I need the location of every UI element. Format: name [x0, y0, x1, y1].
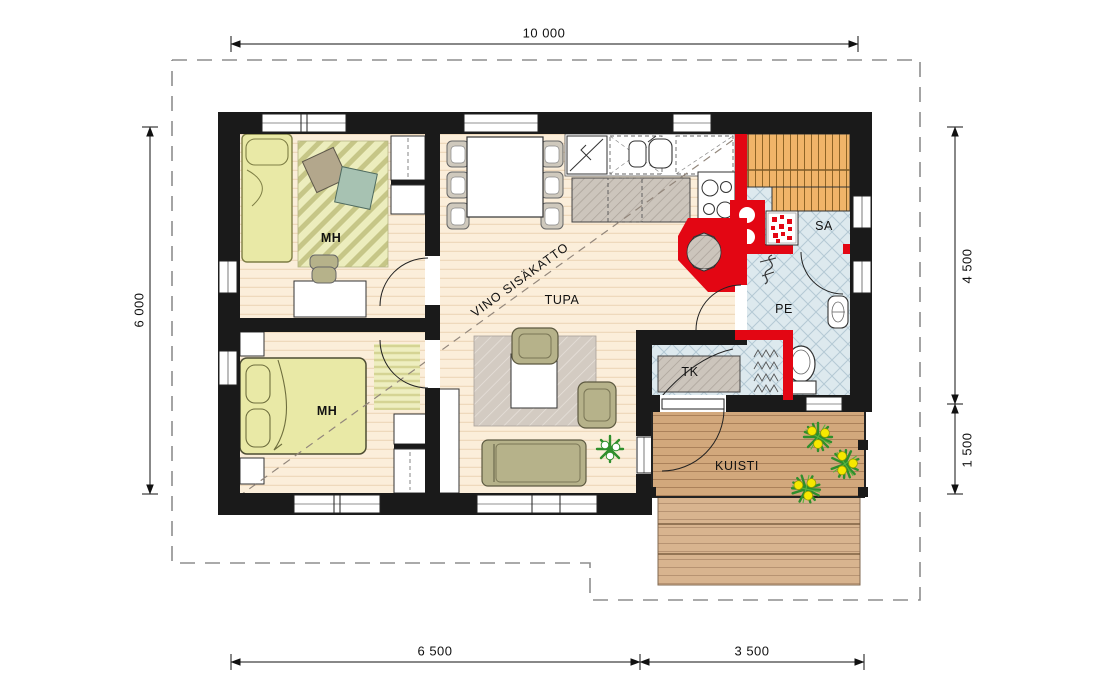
dimension-bottom-left: 6 500	[417, 644, 452, 659]
wardrobe	[394, 414, 426, 444]
kitchen	[565, 134, 735, 222]
window	[853, 261, 871, 293]
window	[673, 114, 711, 132]
dining-table	[467, 137, 543, 217]
porch-deck	[652, 412, 866, 497]
porch-post	[646, 487, 656, 497]
room-label-utility: TK	[681, 365, 698, 379]
door-opening	[425, 340, 440, 388]
window	[219, 261, 237, 293]
sofa	[482, 440, 586, 486]
pillow	[246, 139, 288, 165]
door-opening	[425, 256, 440, 305]
window	[219, 351, 237, 385]
floor-plan-drawing	[0, 0, 1100, 680]
dining-set	[447, 137, 563, 229]
nightstand	[240, 458, 264, 484]
dimension-right-upper: 4 500	[960, 248, 975, 283]
room-label-porch: KUISTI	[715, 459, 759, 473]
window	[477, 495, 597, 513]
pillow	[246, 409, 270, 447]
dimension-top-width: 10 000	[523, 26, 566, 41]
window	[464, 114, 538, 132]
room-label-bedroom-bottom: MH	[317, 404, 337, 418]
window	[262, 114, 346, 132]
room-label-living-room: TUPA	[545, 293, 580, 307]
porch-post	[858, 487, 868, 497]
window	[637, 437, 652, 473]
kitchen-island	[572, 178, 690, 222]
plant	[597, 436, 623, 462]
door-leaf	[662, 399, 724, 409]
window	[853, 196, 871, 228]
cabinet	[437, 389, 459, 493]
dimension-left-height: 6 000	[132, 292, 147, 327]
stove-icon	[698, 172, 735, 222]
floor-cushion	[335, 167, 378, 210]
dimension-right-lower: 1 500	[960, 432, 975, 467]
dimension-bottom-right: 3 500	[734, 644, 769, 659]
porch-post	[858, 440, 868, 450]
sauna-heater-icon	[766, 211, 798, 245]
floor-plan-canvas: MH MH TUPA SA PE TK KUISTI VINO SISÄKATT…	[0, 0, 1100, 680]
nightstand	[240, 332, 264, 356]
window	[294, 495, 380, 513]
kitchen-sink	[629, 141, 646, 167]
porch-steps	[658, 497, 860, 585]
room-label-bedroom-top: MH	[321, 231, 341, 245]
room-label-washroom: PE	[775, 302, 793, 316]
window	[806, 397, 842, 411]
pillow	[246, 365, 270, 403]
door-opening	[735, 285, 747, 330]
room-label-sauna: SA	[815, 219, 833, 233]
desk	[294, 281, 366, 317]
